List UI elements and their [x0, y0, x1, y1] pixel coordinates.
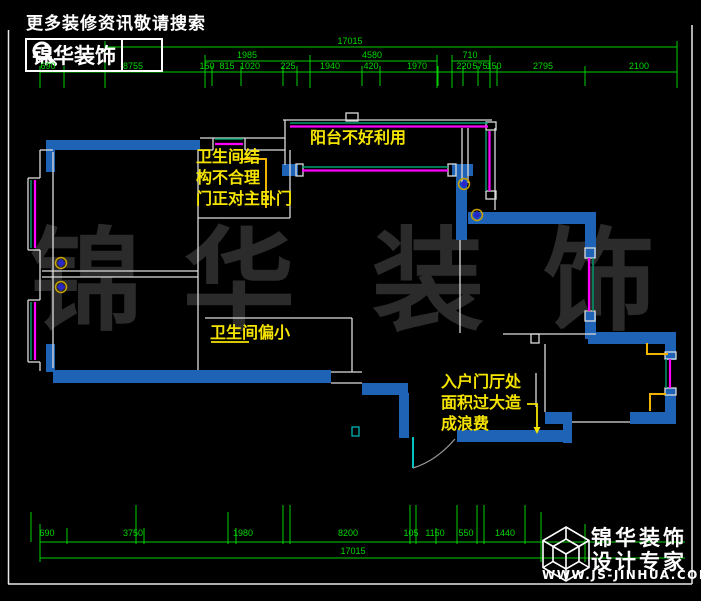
annotation-line: 入户门厅处	[441, 371, 521, 392]
dimension-label: 690	[40, 61, 55, 71]
walls-blue	[46, 140, 676, 443]
dimension-label: 1985	[237, 50, 257, 60]
brand-website: WWW.JS-JINHUA.COM	[542, 568, 701, 582]
plan-annotation-balcony: 阳台不好利用	[310, 127, 406, 148]
dimension-label: 1020	[240, 61, 260, 71]
dimension-label: 150	[199, 61, 214, 71]
dimension-label: 2100	[629, 61, 649, 71]
dimension-label: 550	[458, 528, 473, 538]
cad-floorplan-screenshot: 锦 华 装 饰	[0, 0, 701, 601]
dimension-label: 8200	[338, 528, 358, 538]
annotation-line: 卫生间结	[196, 146, 292, 167]
dimension-label: 710	[462, 50, 477, 60]
dimension-label: 1150	[425, 528, 444, 538]
plan-annotation-foyer-waste: 入户门厅处面积过大造成浪费	[441, 371, 521, 434]
annotation-line: 面积过大造	[441, 392, 521, 413]
dimension-label: 420	[363, 61, 378, 71]
dimension-label: 575	[472, 61, 487, 71]
dimension-label: 220	[456, 61, 471, 71]
dimension-label: 105	[403, 528, 418, 538]
header-slogan: 更多装修资讯敬请搜索	[26, 9, 206, 34]
dimension-label: 17015	[337, 36, 362, 46]
dimension-label: 8755	[123, 61, 143, 71]
floor-plan-drawing	[0, 0, 701, 601]
dimension-label: 1940	[320, 61, 340, 71]
annotation-line: 阳台不好利用	[310, 127, 406, 148]
dimension-label: 150	[486, 61, 501, 71]
dimension-label: 1980	[233, 528, 253, 538]
dimension-label: 17015	[340, 546, 365, 556]
dimension-label: 4580	[362, 50, 382, 60]
annotation-line: 构不合理	[196, 167, 292, 188]
dimension-label: 690	[39, 528, 54, 538]
annotation-line: 门正对主卧门	[196, 188, 292, 209]
dimension-label: 1970	[407, 61, 427, 71]
dimension-label: 2795	[533, 61, 553, 71]
annotation-line: 成浪费	[441, 413, 521, 434]
annotation-line: 卫生间偏小	[210, 322, 290, 343]
dimension-label: 3750	[123, 528, 143, 538]
dimension-label: 225	[280, 61, 295, 71]
plan-annotation-bathroom-structure: 卫生间结构不合理门正对主卧门	[196, 146, 292, 209]
windows	[31, 123, 670, 388]
plan-annotation-bathroom-small: 卫生间偏小	[210, 322, 290, 343]
dimension-label: 1440	[495, 528, 515, 538]
dimension-label: 815	[219, 61, 234, 71]
